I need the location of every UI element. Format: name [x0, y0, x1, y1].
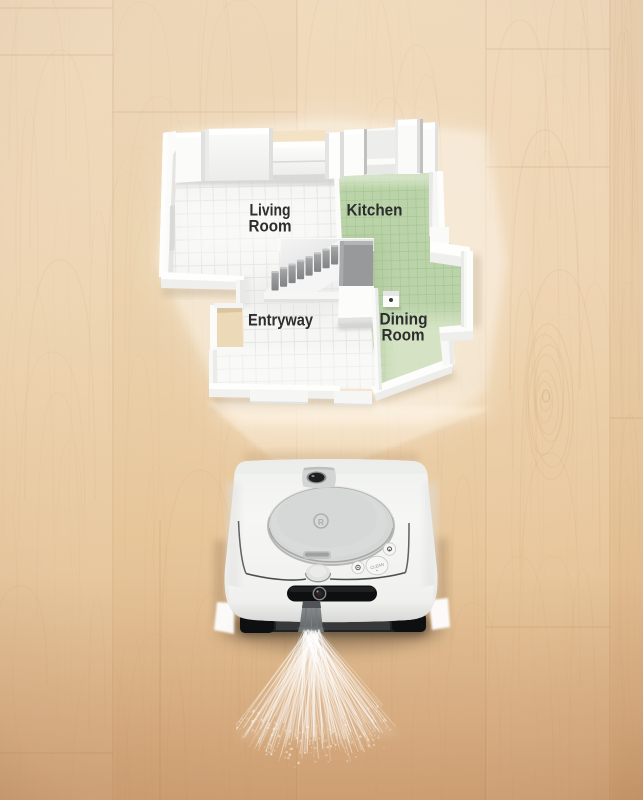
svg-text:Entryway: Entryway — [248, 311, 313, 330]
svg-text:Kitchen: Kitchen — [347, 201, 403, 220]
svg-text:Room: Room — [249, 217, 292, 236]
svg-text:R: R — [318, 517, 324, 527]
svg-text:Room: Room — [382, 326, 425, 345]
